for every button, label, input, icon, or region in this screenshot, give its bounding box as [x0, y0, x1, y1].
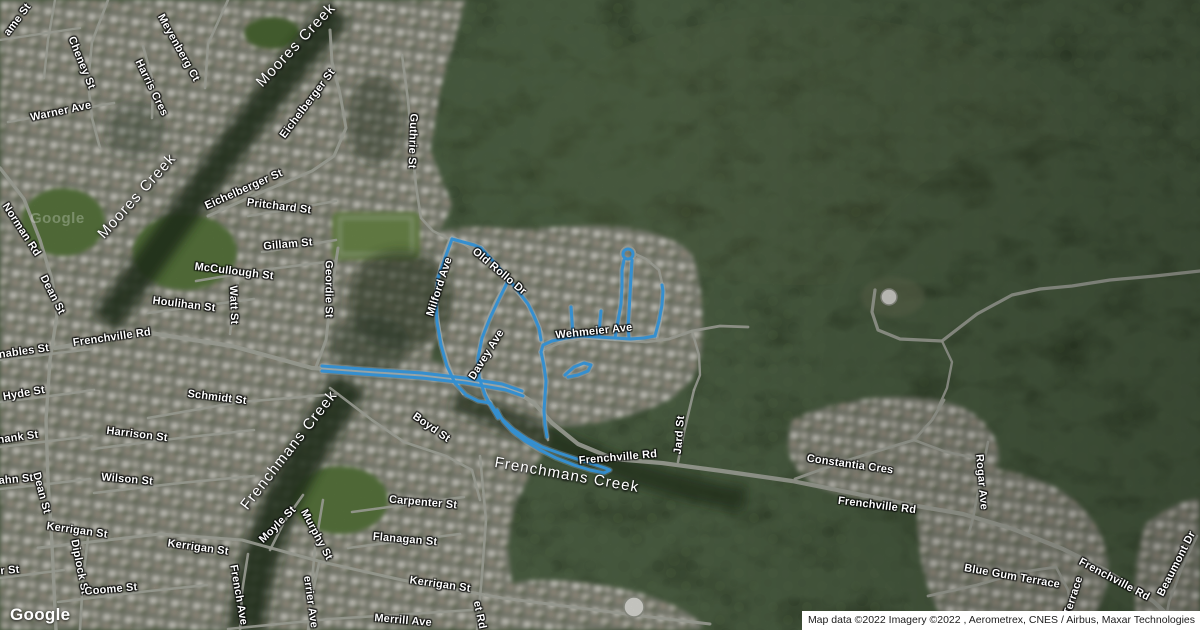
attribution-bar: Map data ©2022 Imagery ©2022 , Aerometre… — [802, 611, 1200, 630]
google-watermark: Google — [30, 210, 85, 227]
satellite-imagery — [0, 0, 1200, 630]
attribution-text: Map data ©2022 Imagery ©2022 , Aerometre… — [808, 614, 1195, 626]
map-canvas[interactable]: ame StCheney StMeyenberg CtHarris CresWa… — [0, 0, 1200, 630]
vignette-overlay — [0, 0, 1200, 630]
google-logo[interactable]: Google — [10, 605, 70, 625]
